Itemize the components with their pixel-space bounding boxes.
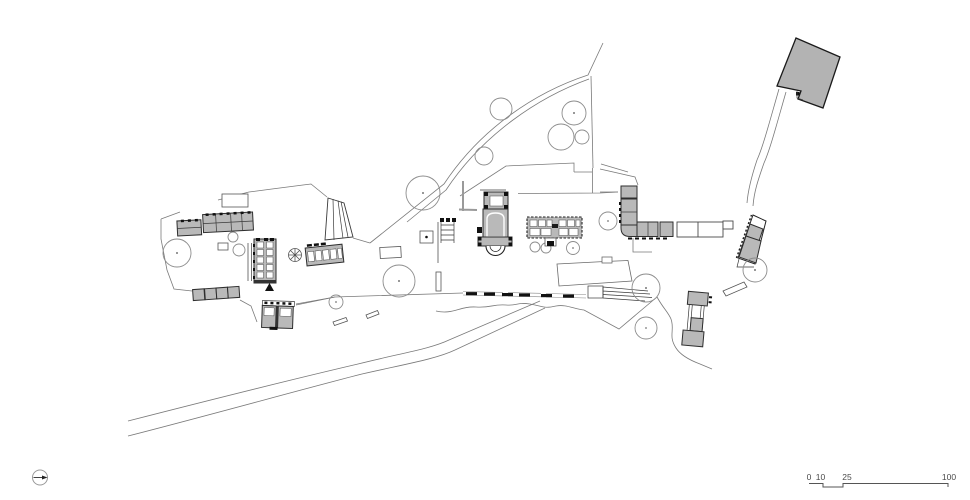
barn-roof-building — [325, 198, 353, 240]
tree-circle — [548, 124, 574, 150]
ramp — [588, 286, 652, 301]
scale-label-100: 100 — [942, 472, 956, 482]
tree-circle — [475, 147, 493, 165]
wheel-symbol — [289, 249, 302, 262]
rail-wall — [463, 292, 586, 299]
retaining-walls — [459, 181, 477, 211]
north-arrow-icon — [33, 470, 48, 485]
long-building-row — [177, 211, 254, 236]
east-slope-building — [737, 215, 767, 267]
footprint-outline — [380, 246, 402, 258]
terrace-building — [557, 257, 632, 286]
well-marker — [420, 231, 433, 243]
tree-circle — [233, 244, 245, 256]
small-outbuilding — [218, 243, 228, 250]
tree-circle — [490, 98, 512, 120]
hilltop-building — [777, 38, 840, 108]
upper-plot-outline — [222, 194, 248, 207]
site-plan-drawing: 0 10 25 100 — [0, 0, 970, 500]
tree-circle — [575, 130, 589, 144]
dormitory-building — [248, 238, 276, 291]
site-boundary-lines — [128, 43, 786, 436]
l-shaped-building — [619, 186, 673, 240]
white-row-building — [677, 221, 733, 237]
narrow-wall — [436, 272, 441, 291]
scale-label-25: 25 — [842, 472, 852, 482]
southeast-building — [682, 291, 713, 347]
church-building — [477, 190, 512, 256]
bench — [333, 318, 348, 326]
tree-circle — [530, 242, 540, 252]
south-building — [261, 300, 294, 330]
tree-circle — [228, 232, 238, 242]
bench — [723, 282, 747, 296]
scale-label-10: 10 — [816, 472, 826, 482]
scale-label-0: 0 — [807, 472, 812, 482]
site-plan-page: 0 10 25 100 — [0, 0, 970, 500]
apse-arc — [486, 246, 505, 256]
stairs — [438, 218, 456, 263]
bench — [366, 311, 379, 319]
triangle-marker — [265, 283, 274, 291]
garden-sheds-row — [193, 286, 240, 300]
east-wing-building — [305, 241, 344, 266]
scale-bar: 0 10 25 100 — [807, 472, 957, 487]
